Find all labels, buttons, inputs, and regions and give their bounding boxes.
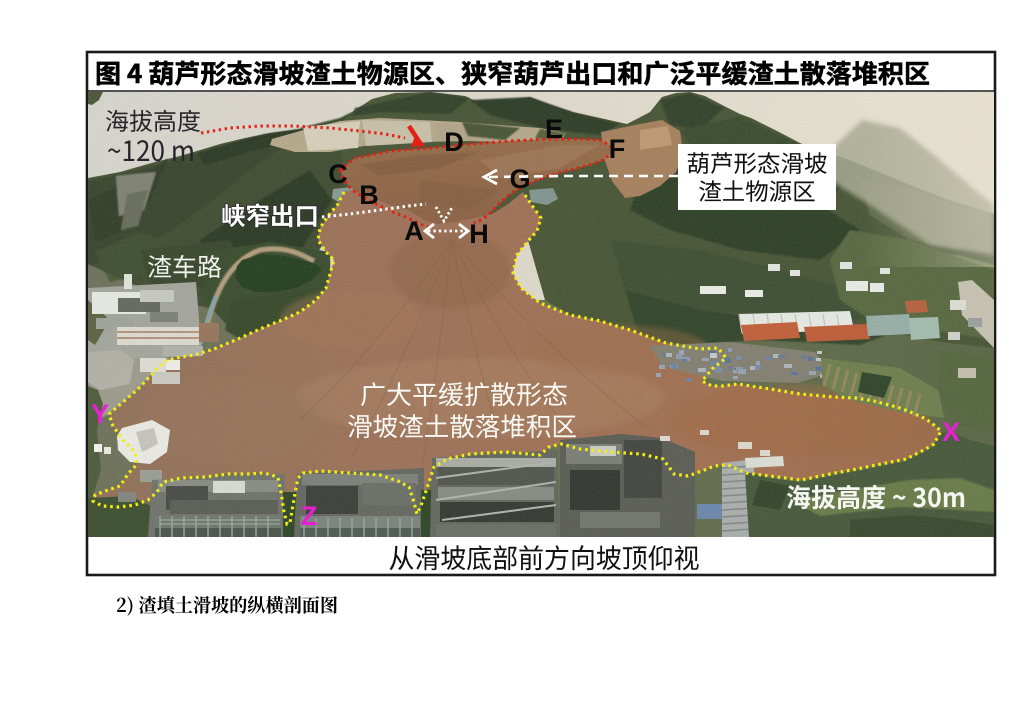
svg-text:X: X	[942, 417, 960, 447]
svg-text:F: F	[609, 134, 626, 164]
svg-text:Y: Y	[91, 399, 109, 429]
svg-text:A: A	[404, 216, 424, 246]
svg-text:G: G	[509, 164, 530, 194]
svg-text:B: B	[359, 180, 379, 210]
svg-text:E: E	[545, 114, 563, 144]
svg-text:D: D	[444, 127, 464, 157]
svg-text:H: H	[469, 219, 489, 249]
svg-text:C: C	[328, 159, 348, 189]
svg-text:Z: Z	[301, 501, 318, 531]
